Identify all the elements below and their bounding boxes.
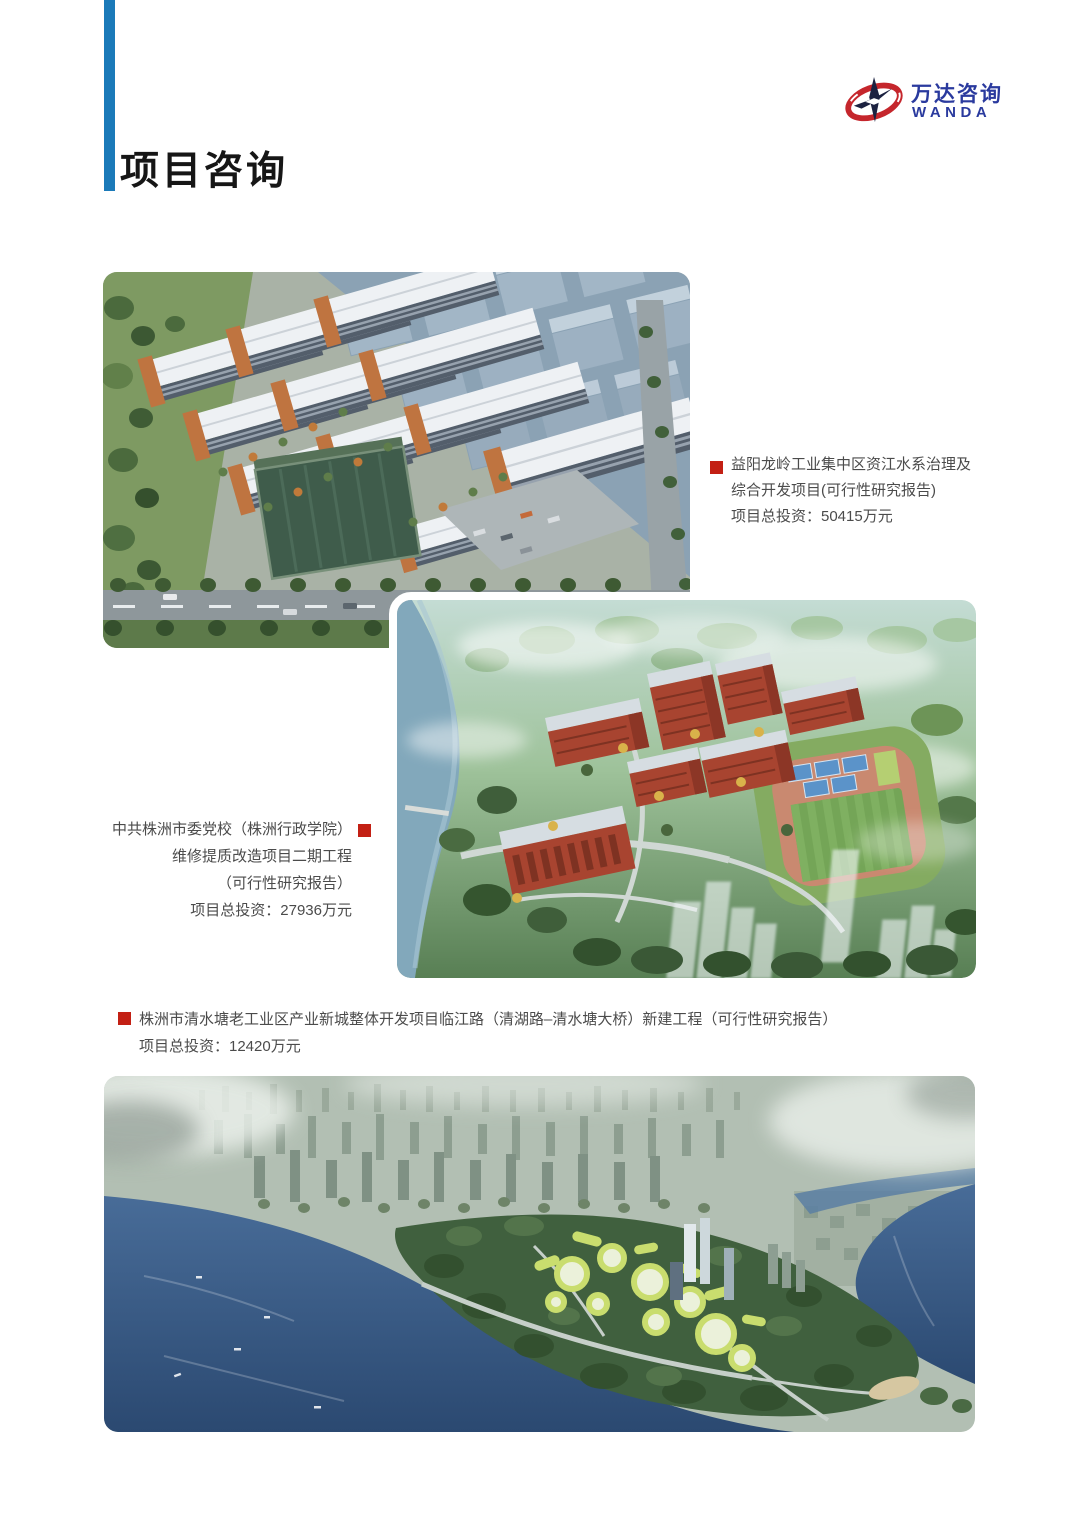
project-3-text: 株洲市清水塘老工业区产业新城整体开发项目临江路（清湖路–清水塘大桥）新建工程（可… bbox=[139, 1006, 837, 1060]
project-2-line-3: （可行性研究报告） bbox=[90, 870, 352, 897]
project-2-line-2: 维修提质改造项目二期工程 bbox=[90, 843, 352, 870]
project-2-line-1: 中共株洲市委党校（株洲行政学院） bbox=[90, 816, 352, 843]
project-2-investment: 项目总投资：27936万元 bbox=[90, 897, 352, 924]
project-3-investment: 项目总投资：12420万元 bbox=[139, 1033, 837, 1060]
project-1-line-1: 益阳龙岭工业集中区资江水系治理及 bbox=[731, 452, 971, 478]
accent-bar bbox=[104, 0, 115, 191]
wanda-logo: 万达咨询 WANDA bbox=[841, 74, 1001, 126]
project-1-line-2: 综合开发项目(可行性研究报告) bbox=[731, 478, 971, 504]
bullet-icon bbox=[358, 824, 371, 837]
bullet-icon bbox=[118, 1012, 131, 1025]
project-2-text: 中共株洲市委党校（株洲行政学院） 维修提质改造项目二期工程 （可行性研究报告） … bbox=[90, 816, 352, 924]
brochure-page: 万达咨询 WANDA 项目咨询 bbox=[0, 0, 1080, 1517]
page-title: 项目咨询 bbox=[120, 140, 288, 196]
project-1-text: 益阳龙岭工业集中区资江水系治理及 综合开发项目(可行性研究报告) 项目总投资：5… bbox=[731, 452, 971, 530]
logo-text-en: WANDA bbox=[912, 104, 991, 121]
project-1-investment: 项目总投资：50415万元 bbox=[731, 504, 971, 530]
project-image-riverside-city bbox=[104, 1076, 975, 1432]
wanda-logo-icon bbox=[841, 76, 907, 124]
project-image-campus bbox=[389, 592, 984, 986]
bullet-icon bbox=[710, 461, 723, 474]
project-3-line-1: 株洲市清水塘老工业区产业新城整体开发项目临江路（清湖路–清水塘大桥）新建工程（可… bbox=[139, 1006, 837, 1033]
